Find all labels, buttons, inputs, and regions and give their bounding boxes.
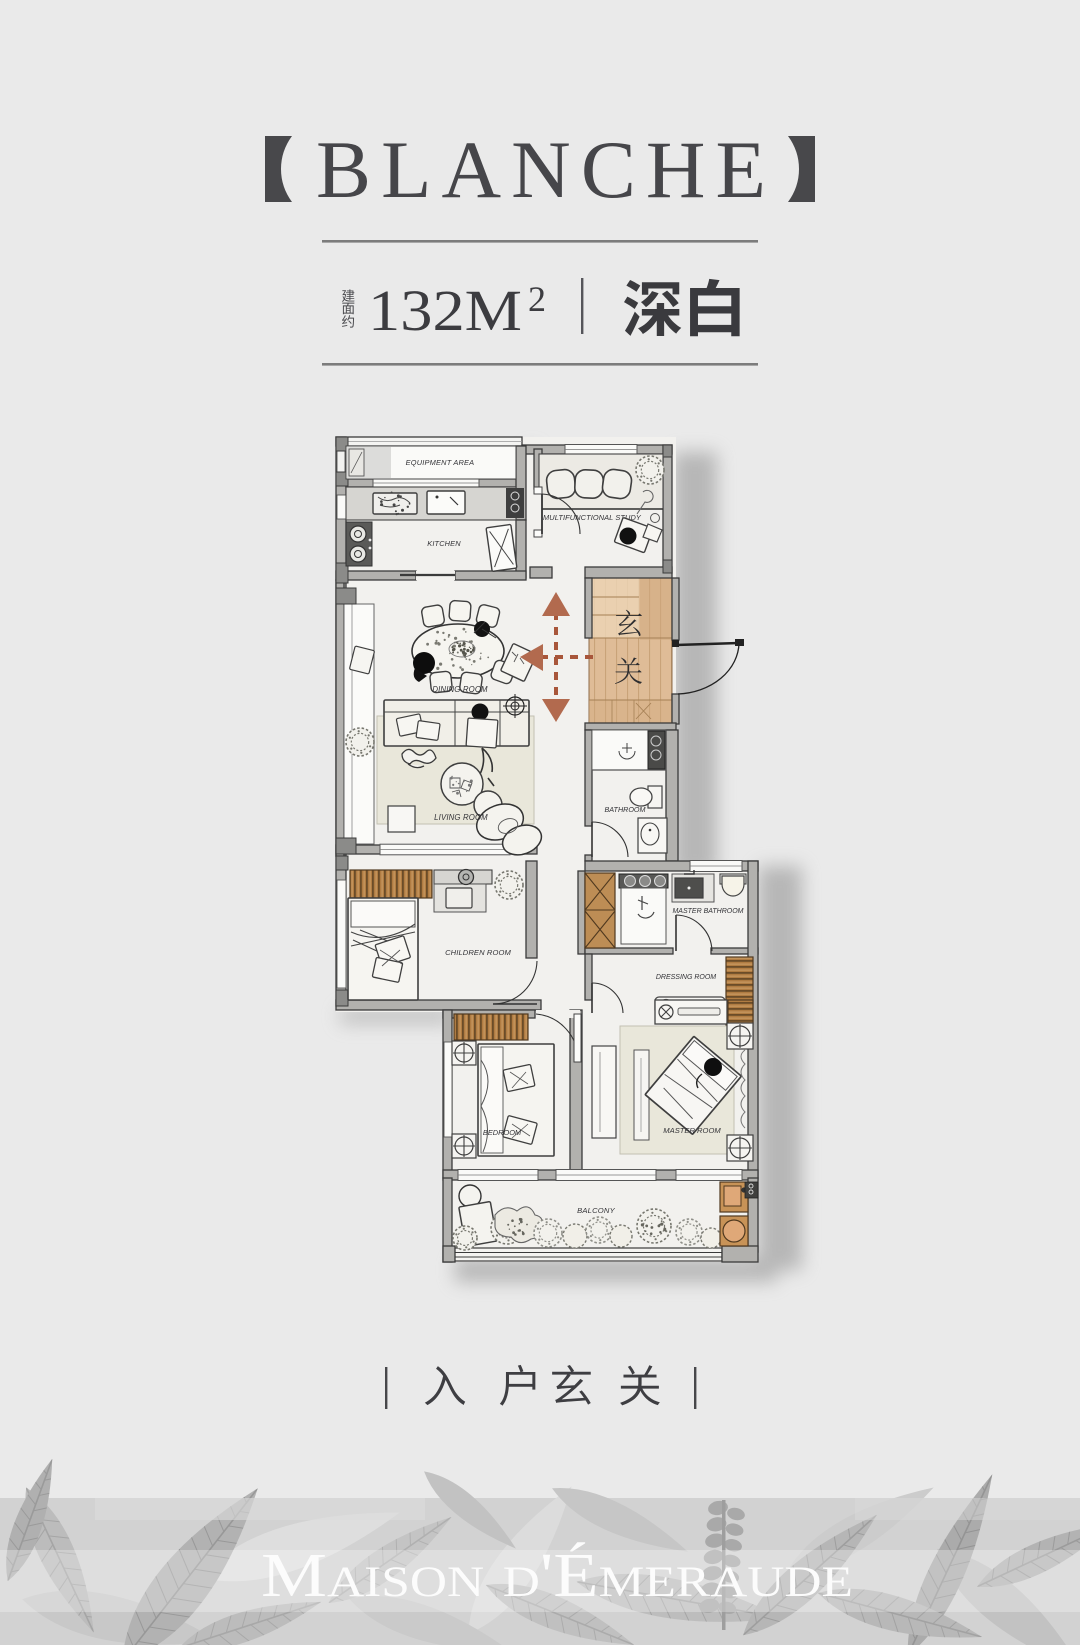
svg-text:132M: 132M bbox=[368, 278, 522, 343]
svg-text:EQUIPMENT AREA: EQUIPMENT AREA bbox=[406, 458, 475, 467]
svg-text:BLANCHE: BLANCHE bbox=[316, 124, 776, 215]
svg-text:2: 2 bbox=[528, 279, 546, 319]
svg-text:MASTER BATHROOM: MASTER BATHROOM bbox=[672, 908, 743, 915]
svg-text:LIVING ROOM: LIVING ROOM bbox=[434, 813, 488, 822]
svg-text:CHILDREN ROOM: CHILDREN ROOM bbox=[445, 948, 511, 957]
svg-text:Maison d'Émeraude: Maison d'Émeraude bbox=[261, 1542, 853, 1610]
svg-text:BALCONY: BALCONY bbox=[577, 1206, 615, 1215]
svg-text:DRESSING ROOM: DRESSING ROOM bbox=[656, 974, 716, 981]
svg-text:BATHROOM: BATHROOM bbox=[605, 805, 646, 814]
svg-text:KITCHEN: KITCHEN bbox=[427, 539, 461, 548]
svg-text:DINING ROOM: DINING ROOM bbox=[432, 685, 488, 694]
svg-text:MASTER ROOM: MASTER ROOM bbox=[663, 1126, 721, 1135]
svg-text:BEDROOM: BEDROOM bbox=[483, 1128, 522, 1137]
